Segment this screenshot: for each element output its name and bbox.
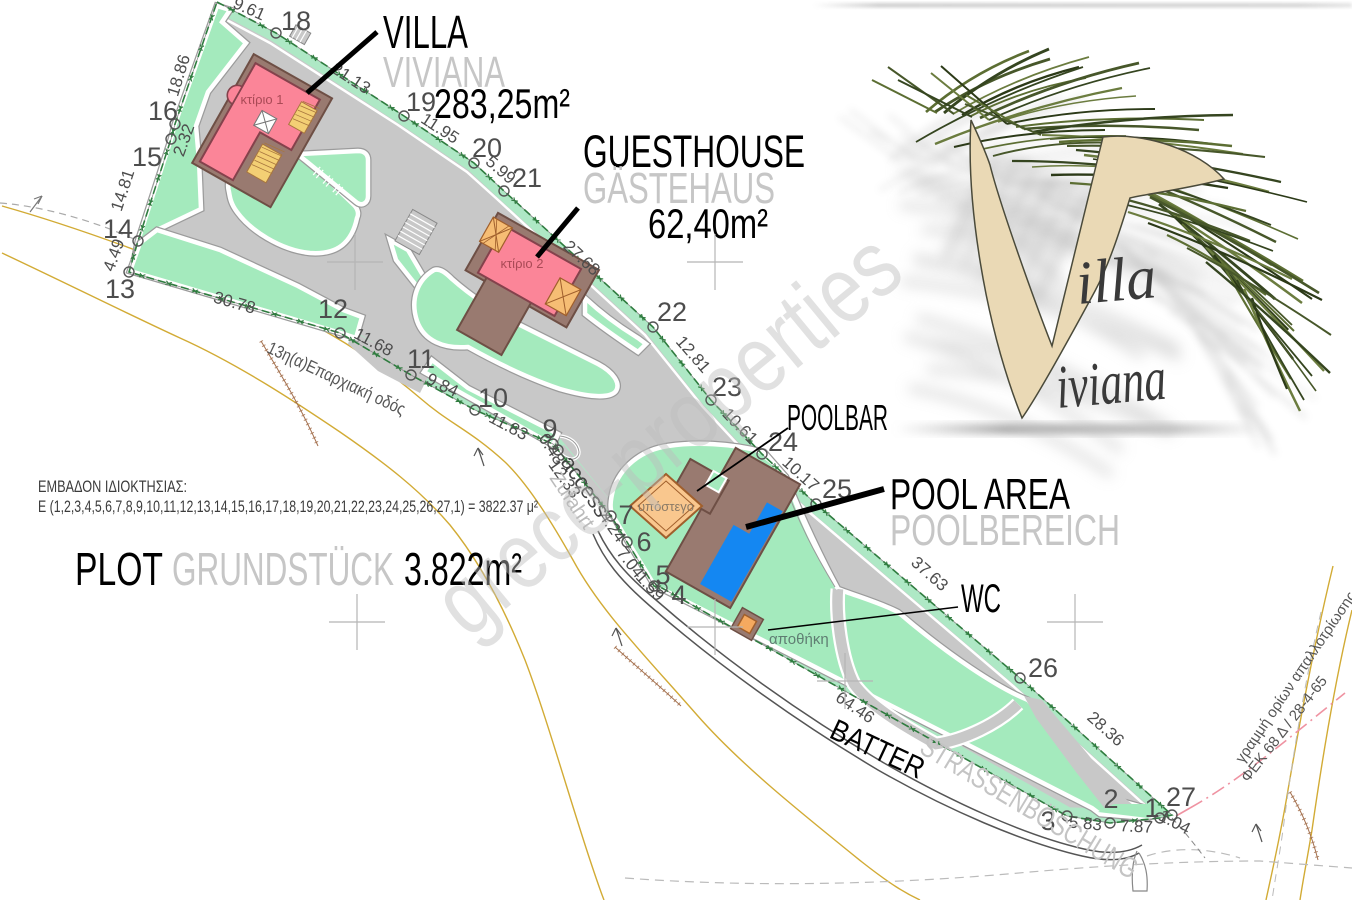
svg-text:10: 10 [478, 383, 508, 413]
svg-text:62,40m²: 62,40m² [648, 200, 768, 247]
svg-text:ΕΜΒΑΔΟΝ ΙΔΙΟΚΤΗΣΙΑΣ:: ΕΜΒΑΔΟΝ ΙΔΙΟΚΤΗΣΙΑΣ: [38, 477, 187, 496]
svg-text:26: 26 [1028, 653, 1058, 683]
svg-text:κτίριο 1: κτίριο 1 [241, 92, 284, 107]
svg-text:15: 15 [132, 142, 162, 172]
svg-text:illa: illa [1073, 243, 1159, 318]
svg-text:6: 6 [636, 527, 651, 557]
svg-text:iviana: iviana [1053, 345, 1169, 422]
svg-text:283,25m²: 283,25m² [434, 80, 570, 127]
svg-text:16: 16 [148, 96, 178, 126]
svg-text:18: 18 [281, 6, 311, 36]
svg-text:7.87: 7.87 [1119, 816, 1153, 837]
svg-text:27: 27 [1166, 782, 1196, 812]
svg-text:POOLBEREICH: POOLBEREICH [890, 506, 1120, 555]
svg-text:Ε (1,2,3,4,5,6,7,8,9,10,11,12,: Ε (1,2,3,4,5,6,7,8,9,10,11,12,13,14,15,1… [38, 497, 538, 516]
svg-text:αποθήκη: αποθήκη [769, 631, 829, 648]
svg-text:22: 22 [657, 297, 687, 327]
svg-text:21: 21 [512, 163, 542, 193]
svg-text:GRUNDSTÜCK: GRUNDSTÜCK [172, 543, 394, 595]
svg-text:κτίριο 2: κτίριο 2 [501, 256, 544, 271]
svg-text:4: 4 [671, 580, 686, 610]
svg-text:PLOT: PLOT [75, 543, 163, 595]
svg-text:12: 12 [318, 294, 348, 324]
svg-text:13: 13 [105, 274, 135, 304]
svg-text:POOLBAR: POOLBAR [787, 397, 888, 438]
svg-text:WC: WC [961, 577, 1001, 621]
svg-text:2: 2 [1103, 784, 1118, 814]
